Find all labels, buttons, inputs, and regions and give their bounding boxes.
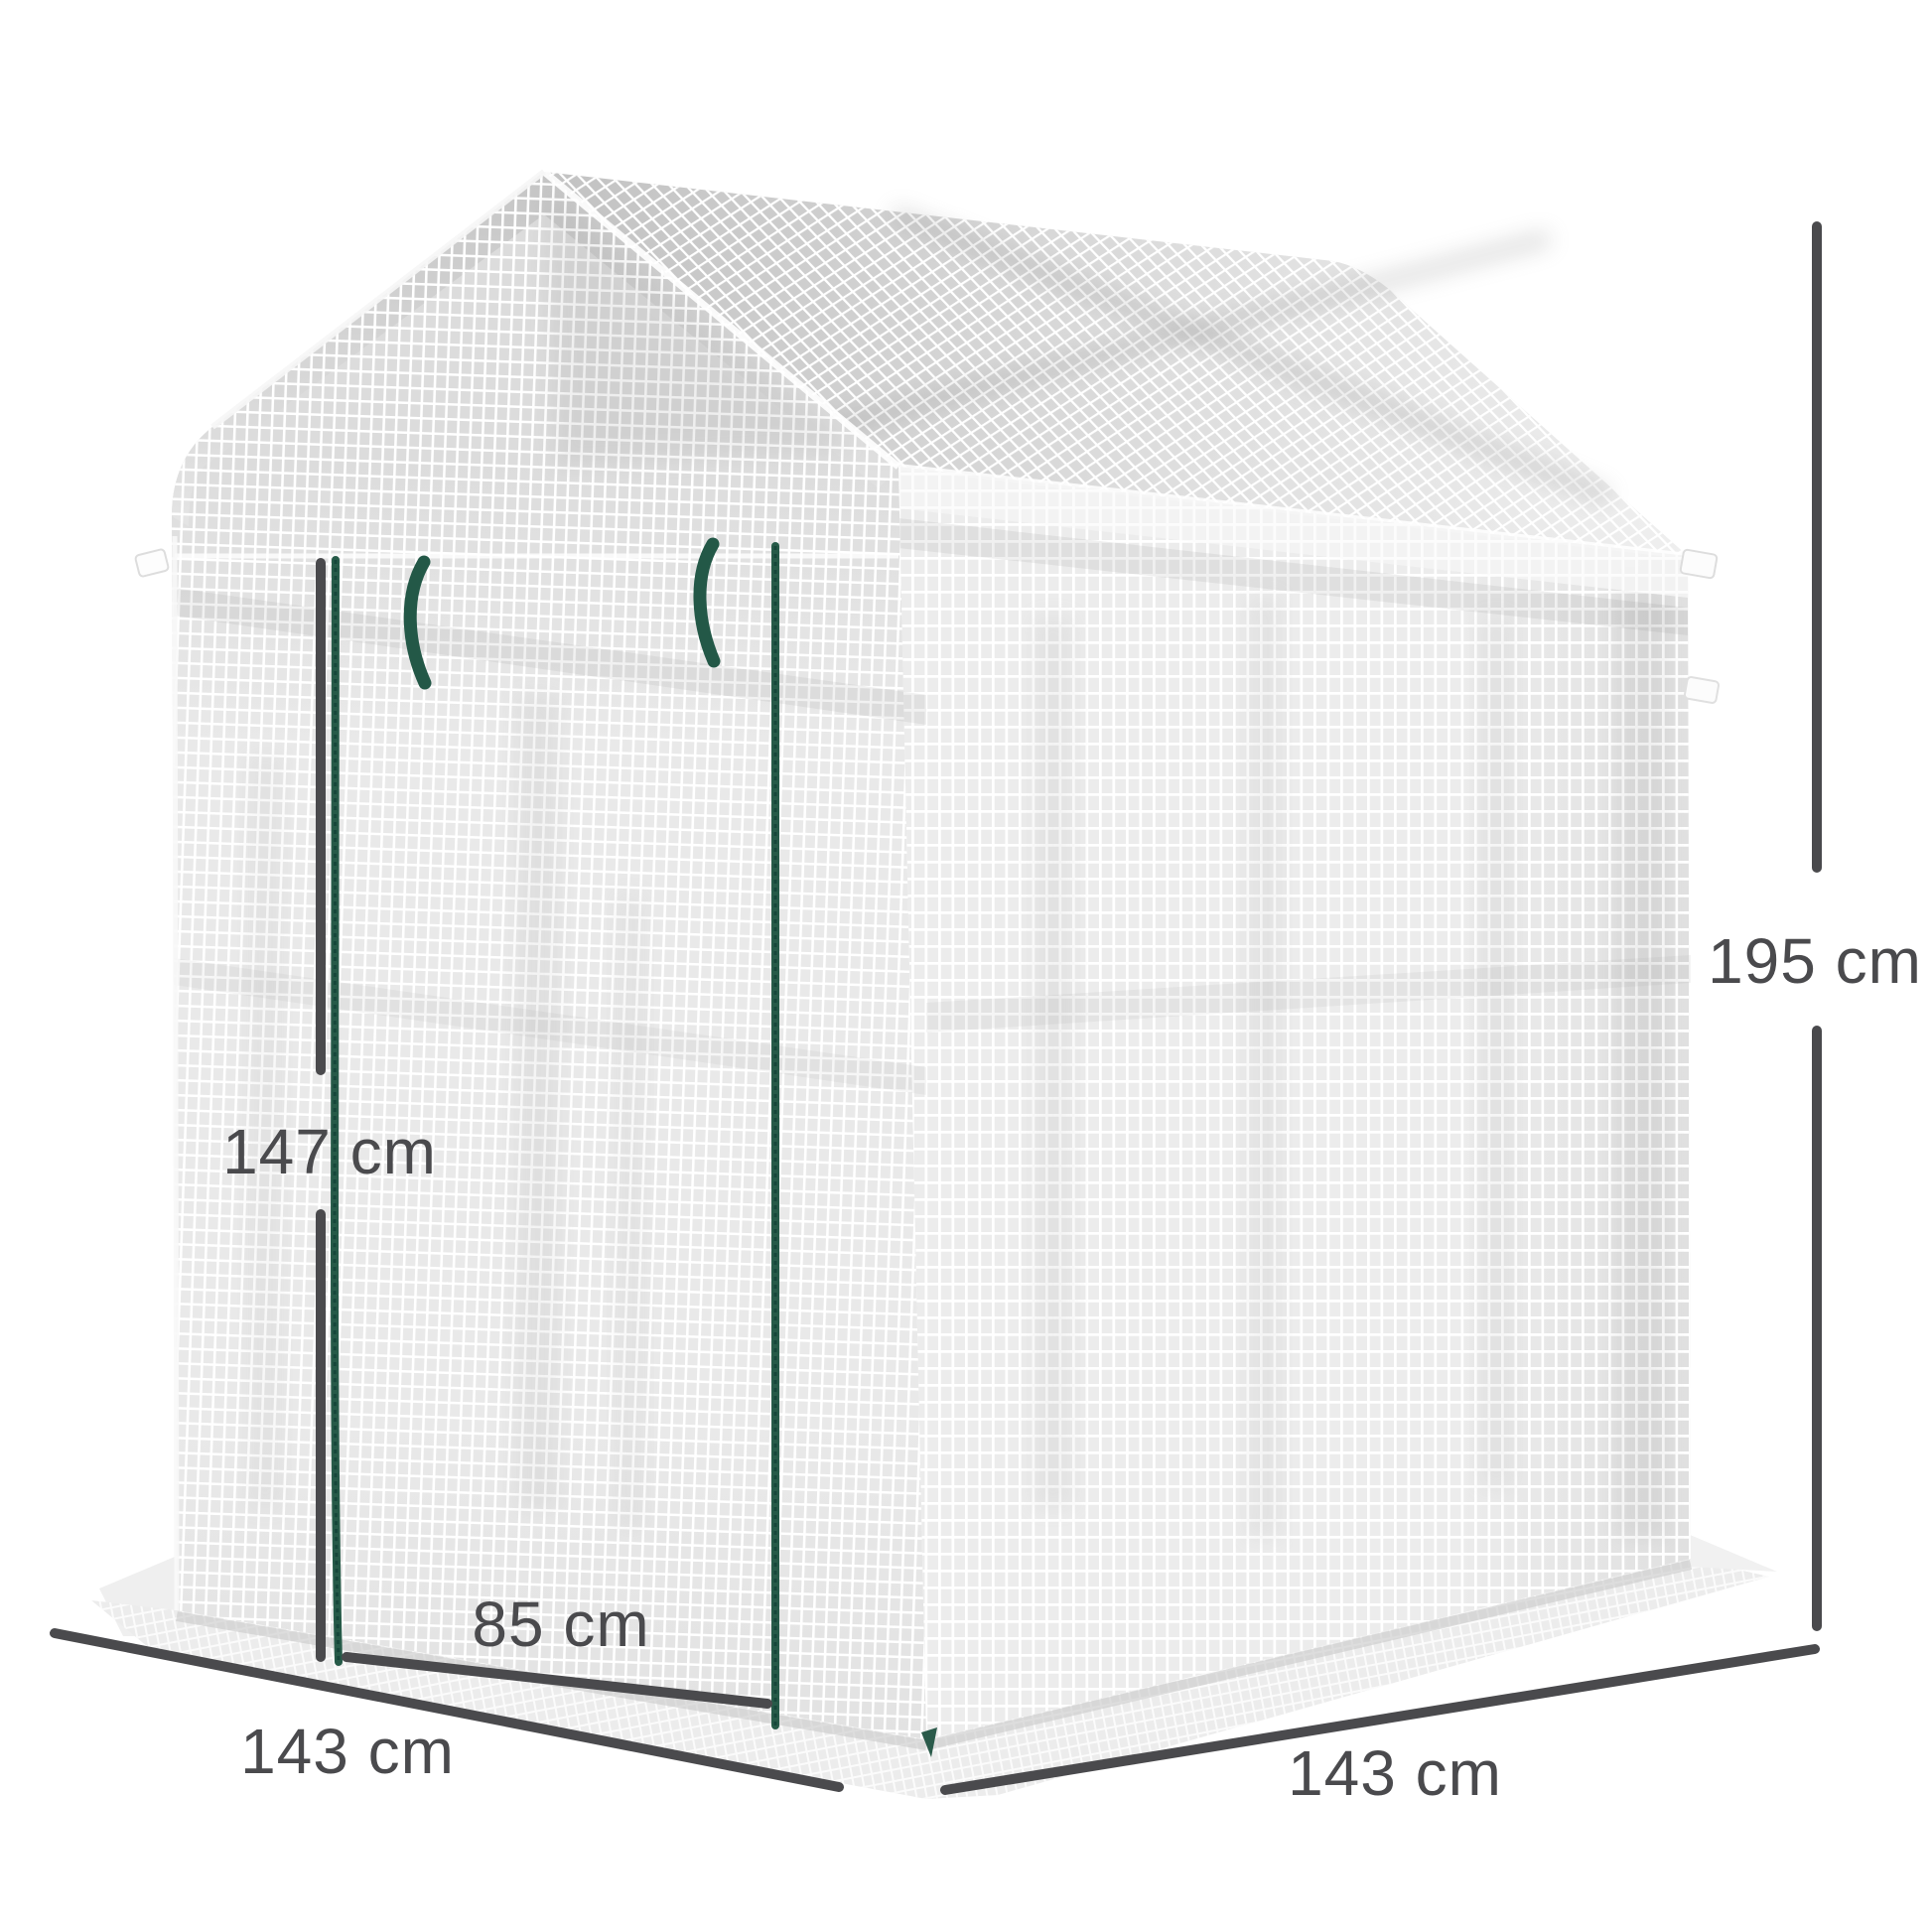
tie-tab-right-lower bbox=[1684, 676, 1719, 703]
dimension-label-door-width: 85 cm bbox=[472, 1588, 649, 1660]
dimension-label-width: 143 cm bbox=[1288, 1737, 1502, 1809]
tie-tab-left bbox=[135, 549, 169, 578]
greenhouse-illustration bbox=[91, 172, 1777, 1799]
dimension-label-total-height: 195 cm bbox=[1708, 925, 1922, 997]
greenhouse-diagram-canvas: 195 cm 147 cm 85 cm 143 cm 143 cm bbox=[0, 0, 1932, 1932]
right-wall bbox=[898, 467, 1691, 1739]
front-face bbox=[172, 172, 926, 1739]
product-dimension-diagram: 195 cm 147 cm 85 cm 143 cm 143 cm bbox=[0, 0, 1932, 1932]
dimension-label-depth: 143 cm bbox=[240, 1716, 455, 1787]
tie-tab-right-upper bbox=[1680, 549, 1718, 579]
dimension-label-door-height: 147 cm bbox=[222, 1116, 437, 1187]
